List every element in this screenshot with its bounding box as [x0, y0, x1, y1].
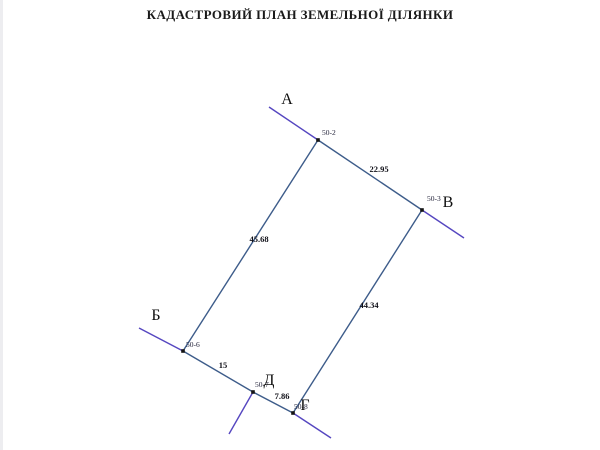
extension-line-beyond-G [293, 413, 331, 438]
extension-line-beyond-B [139, 328, 183, 351]
page-left-edge [0, 0, 3, 450]
vertex-marker [316, 138, 320, 142]
document-page: КАДАСТРОВИЙ ПЛАН ЗЕМЕЛЬНОЇ ДІЛЯНКИ 50-25… [0, 0, 600, 450]
adjacent-parcel-letter: Г [300, 397, 309, 414]
distance-label: 22.95 [369, 164, 388, 174]
boundary-line [183, 140, 318, 351]
boundary-line [318, 140, 422, 210]
vertex-marker [291, 411, 295, 415]
vertex-label: 50-2 [322, 128, 336, 137]
distance-label: 15 [219, 360, 228, 370]
extension-line-beyond-A [269, 107, 318, 140]
cadastral-plan-drawing: 50-250-350-650-750-822.9544.347.861545.6… [0, 0, 600, 450]
boundary-line [183, 351, 253, 392]
adjacent-parcel-letter: Д [264, 372, 275, 389]
vertex-label: 50-6 [186, 340, 200, 349]
boundary-line [293, 210, 422, 413]
page-title: КАДАСТРОВИЙ ПЛАН ЗЕМЕЛЬНОЇ ДІЛЯНКИ [0, 7, 600, 23]
distance-label: 44.34 [359, 300, 379, 310]
adjacent-parcel-letter: В [443, 194, 454, 211]
vertex-marker [420, 208, 424, 212]
vertex-marker [251, 390, 255, 394]
distance-label: 7.86 [275, 391, 290, 401]
extension-line-below-D [229, 392, 253, 434]
adjacent-parcel-letter: Б [151, 307, 160, 324]
distance-label: 45.68 [249, 234, 268, 244]
adjacent-parcel-letter: А [281, 91, 293, 108]
extension-line-beyond-V [422, 210, 464, 238]
vertex-marker [181, 349, 185, 353]
vertex-label: 50-3 [427, 194, 441, 203]
